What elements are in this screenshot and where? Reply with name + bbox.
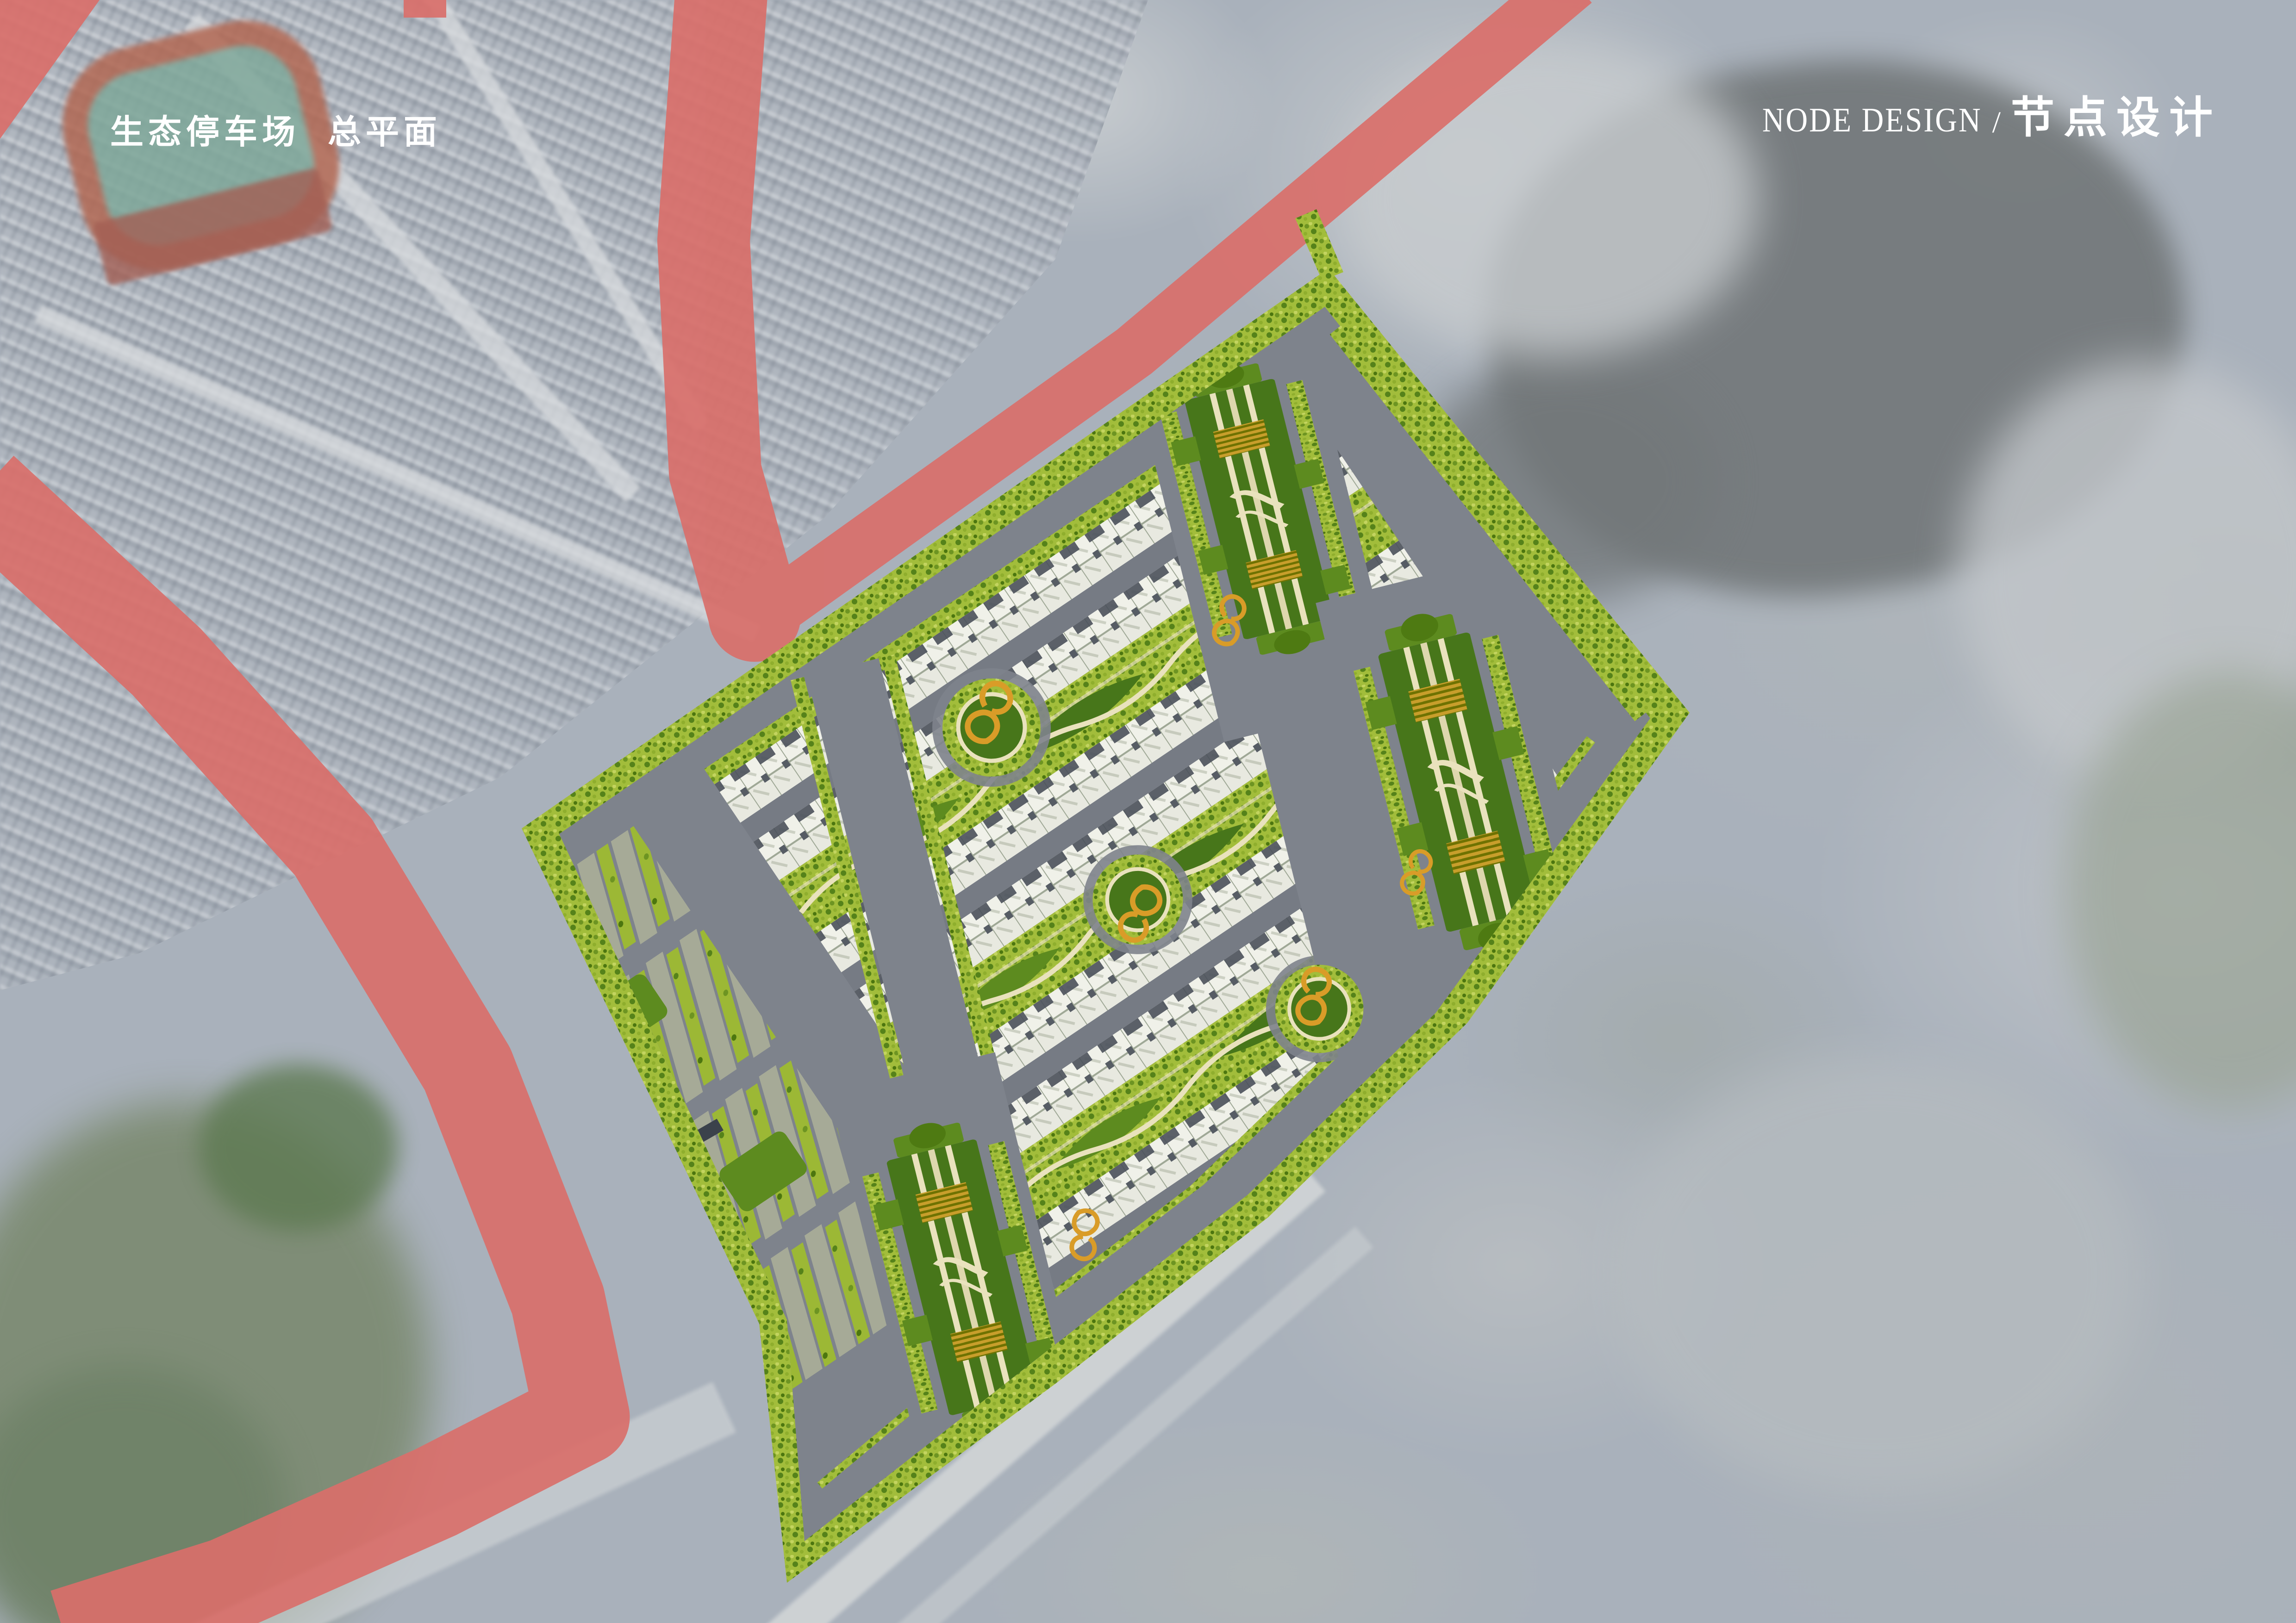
red-road-west xyxy=(0,491,582,1623)
red-road-corner-fragment xyxy=(0,0,100,139)
eco-parking-masterplan xyxy=(460,209,1712,1623)
red-road-north-south xyxy=(704,0,757,622)
presentation-slide: 生态停车场 总平面 NODE DESIGN / 节点设计 xyxy=(0,0,2296,1623)
masterplan-overlay xyxy=(0,0,2296,1623)
red-road-top-fragment xyxy=(404,0,446,18)
